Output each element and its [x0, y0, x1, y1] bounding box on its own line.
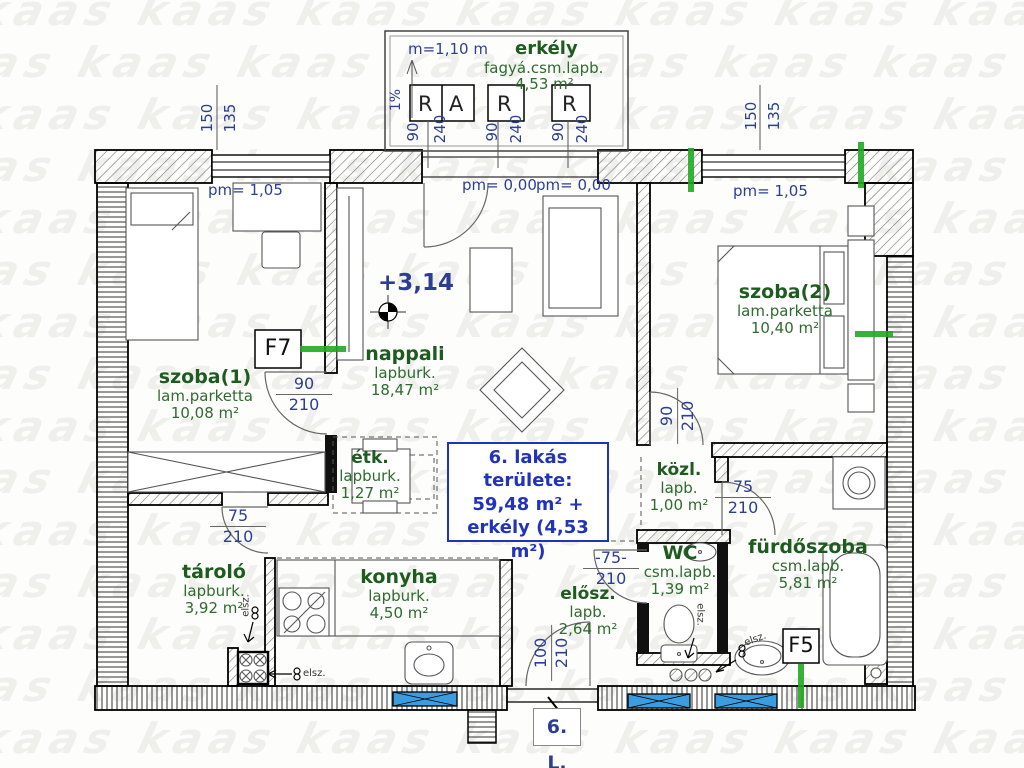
washing-machine — [833, 457, 885, 509]
door-dim-tarolo: 75 210 — [210, 507, 266, 547]
info-line3: 59,48 m² + — [449, 493, 607, 516]
room-wc: WC csm.lapb. 1,39 m² — [628, 543, 732, 598]
panel-a: A — [449, 92, 463, 116]
stove — [238, 652, 268, 684]
panel-dim-h1: 240 — [431, 106, 449, 152]
door-dim-furdo-h: 210 — [715, 497, 771, 517]
room-nappali-finish: lapburk. — [330, 365, 480, 382]
balcony-railing-height: m=1,10 m — [408, 40, 488, 58]
room-etkezo-name: étk. — [316, 449, 424, 468]
balcony-area: 4,53 m² — [515, 75, 574, 93]
room-konyha: konyha lapburk. 4,50 m² — [335, 567, 463, 622]
room-furdoszoba-area: 5,81 m² — [728, 575, 888, 592]
room-kozlekedo-name: közl. — [640, 461, 718, 480]
door-dim-furdo-w: 75 — [715, 478, 771, 496]
vent-label-wc: elsz. — [695, 597, 706, 633]
info-line1: 6. lakás — [449, 446, 607, 469]
window-right-dim-a: 150 — [742, 93, 760, 139]
panel-dim-w1: 90 — [404, 109, 422, 155]
nappali-armchair — [480, 348, 564, 432]
balcony-slope: 1% — [388, 77, 404, 123]
room-nappali-area: 18,47 m² — [330, 382, 480, 399]
info-line2: területe: — [449, 469, 607, 492]
panel-dim-h3: 240 — [573, 106, 591, 152]
room-nappali-name: nappali — [330, 344, 480, 365]
room-etkezo-finish: lapburk. — [316, 468, 424, 485]
room-szoba1: szoba(1) lam.parketta 10,08 m² — [115, 367, 295, 422]
unit-number-label: 6. L. — [533, 708, 581, 746]
room-szoba2-finish: lam.parketta — [700, 303, 870, 320]
door-dim-entrance: 100 210 — [532, 625, 572, 681]
door-dim-szoba1-h: 210 — [276, 394, 332, 414]
level-symbol — [370, 295, 406, 329]
marker-f7: F7 — [256, 336, 300, 361]
door-dim-szoba2: 90 210 — [658, 388, 698, 444]
room-szoba1-area: 10,08 m² — [115, 405, 295, 422]
floor-plan: kaas kaas kaas kaas kaas kaas kaas kaas … — [0, 0, 1024, 768]
info-line4: erkély (4,53 m²) — [449, 516, 607, 563]
toilet — [661, 605, 697, 662]
window-left-dim-b: 135 — [221, 95, 239, 141]
room-szoba1-finish: lam.parketta — [115, 388, 295, 405]
doormats — [393, 692, 777, 708]
room-furdoszoba-finish: csm.lapb. — [728, 558, 888, 575]
panel-dim-w3: 90 — [549, 109, 567, 155]
door-dim-szoba1: 90 210 — [276, 375, 332, 415]
room-konyha-finish: lapburk. — [335, 588, 463, 605]
konyha-sink — [405, 642, 453, 684]
door-dim-szoba2-h: 210 — [678, 388, 698, 444]
nappali-wardrobe — [337, 188, 363, 360]
room-szoba1-name: szoba(1) — [115, 367, 295, 388]
door-dim-wc-h: 210 — [583, 568, 639, 588]
door-dim-szoba2-w: 90 — [658, 388, 676, 444]
room-wc-area: 1,39 m² — [628, 581, 732, 598]
szoba1-bed — [126, 188, 198, 340]
door-dim-furdo: 75 210 — [715, 478, 771, 518]
room-szoba2-name: szoba(2) — [700, 282, 870, 303]
bathroom-sink — [735, 641, 789, 675]
room-furdoszoba: fürdőszoba csm.lapb. 5,81 m² — [728, 537, 888, 592]
sill-left-label: pm= 1,05 — [208, 181, 283, 199]
room-kozlekedo-finish: lapb. — [640, 480, 718, 497]
balcony-name: erkély — [515, 38, 578, 59]
balcony-level-a: pm= 0,00 — [462, 176, 537, 194]
window-left-dim-a: 150 — [198, 95, 216, 141]
apartment-info-box: 6. lakás területe: 59,48 m² + erkély (4,… — [447, 442, 609, 542]
room-furdoszoba-name: fürdőszoba — [728, 537, 888, 558]
door-dim-szoba1-w: 90 — [276, 375, 332, 393]
panel-dim-h2: 240 — [507, 106, 525, 152]
room-tarolo-area: 3,92 m² — [150, 600, 278, 617]
door-dim-entrance-w: 100 — [532, 625, 550, 681]
room-wc-name: WC — [628, 543, 732, 564]
floor-level: +3,14 — [378, 270, 454, 296]
vent-label-konyha: elsz. — [303, 668, 326, 679]
door-dim-entrance-h: 210 — [552, 625, 572, 681]
entry-steps — [468, 710, 496, 743]
room-tarolo-finish: lapburk. — [150, 583, 278, 600]
balcony-level-b: pm= 0,00 — [536, 176, 611, 194]
vent-label-tarolo: elsz. — [241, 588, 252, 624]
room-tarolo: tároló lapburk. 3,92 m² — [150, 562, 278, 617]
window-right-dim-b: 135 — [765, 93, 783, 139]
room-etkezo-area: 1,27 m² — [316, 485, 424, 502]
room-kozlekedo: közl. lapb. 1,00 m² — [640, 461, 718, 514]
panel-dim-w2: 90 — [483, 109, 501, 155]
room-etkezo: étk. lapburk. 1,27 m² — [316, 449, 424, 502]
room-konyha-area: 4,50 m² — [335, 605, 463, 622]
door-dim-tarolo-w: 75 — [210, 507, 266, 525]
room-nappali: nappali lapburk. 18,47 m² — [330, 344, 480, 399]
room-szoba2: szoba(2) lam.parketta 10,40 m² — [700, 282, 870, 337]
room-konyha-name: konyha — [335, 567, 463, 588]
marker-f5: F5 — [784, 633, 818, 657]
door-dim-tarolo-h: 210 — [210, 526, 266, 546]
room-szoba2-area: 10,40 m² — [700, 320, 870, 337]
szoba1-wardrobe — [128, 452, 325, 492]
room-wc-finish: csm.lapb. — [628, 564, 732, 581]
room-tarolo-name: tároló — [150, 562, 278, 583]
windows — [212, 155, 845, 177]
room-eloszoba-finish: lapb. — [538, 604, 638, 621]
room-kozlekedo-area: 1,00 m² — [640, 497, 718, 514]
nappali-sofa — [470, 196, 618, 316]
walls-bottom — [95, 686, 915, 710]
sill-right-label: pm= 1,05 — [733, 182, 808, 200]
